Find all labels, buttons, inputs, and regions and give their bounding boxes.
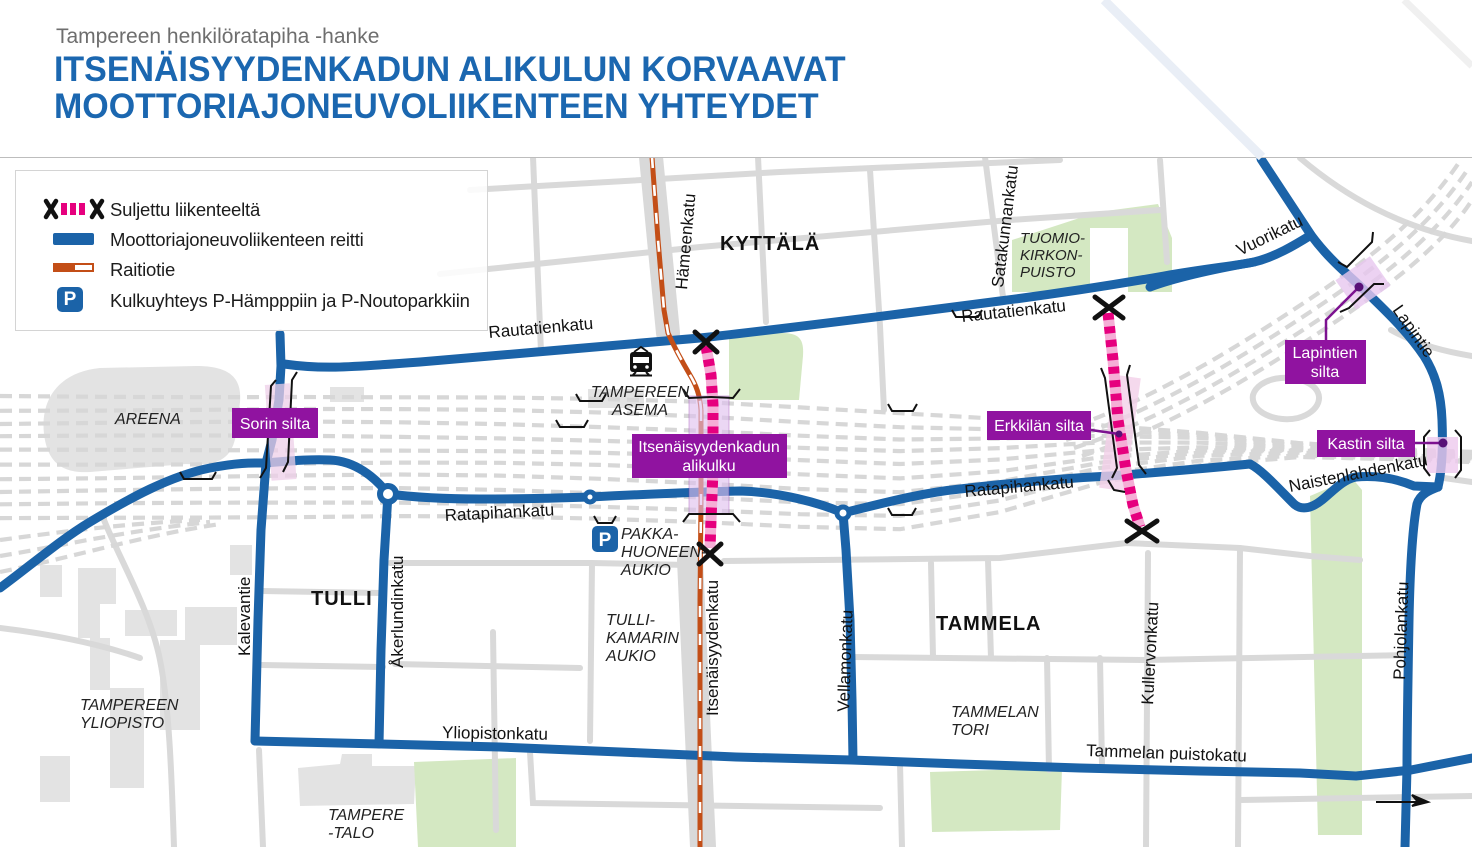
svg-text:Kalevantie: Kalevantie xyxy=(235,577,254,656)
svg-text:KIRKON-: KIRKON- xyxy=(1020,247,1083,264)
svg-text:TAMPEREEN: TAMPEREEN xyxy=(80,697,179,714)
svg-text:KAMARIN: KAMARIN xyxy=(606,630,679,647)
svg-text:Itsenäisyydenkatu: Itsenäisyydenkatu xyxy=(703,580,722,716)
svg-text:Itsenäisyydenkadun: Itsenäisyydenkadun xyxy=(638,439,779,456)
svg-text:PUISTO: PUISTO xyxy=(1020,264,1076,281)
svg-text:AUKIO: AUKIO xyxy=(605,648,656,665)
svg-text:TULLI-: TULLI- xyxy=(606,612,655,629)
svg-text:TORI: TORI xyxy=(951,722,989,739)
svg-text:TULLI: TULLI xyxy=(311,588,373,610)
svg-text:TUOMIO-: TUOMIO- xyxy=(1020,230,1085,247)
svg-text:Kastin silta: Kastin silta xyxy=(1327,436,1404,453)
svg-text:-TALO: -TALO xyxy=(328,825,374,842)
svg-text:silta: silta xyxy=(1311,364,1340,381)
svg-text:PAKKA-: PAKKA- xyxy=(621,526,679,543)
svg-text:AREENA: AREENA xyxy=(114,411,181,428)
svg-text:HUONEEN-: HUONEEN- xyxy=(621,544,706,561)
svg-text:TAMMELAN: TAMMELAN xyxy=(951,704,1039,721)
svg-text:TAMPERE: TAMPERE xyxy=(328,807,404,824)
svg-text:ASEMA: ASEMA xyxy=(611,402,668,419)
svg-text:Erkkilän silta: Erkkilän silta xyxy=(994,418,1084,435)
svg-text:Pohjolankatu: Pohjolankatu xyxy=(1390,581,1412,680)
svg-text:alikulku: alikulku xyxy=(682,458,735,475)
svg-text:Sorin silta: Sorin silta xyxy=(240,416,310,433)
svg-text:Åkerlundinkatu: Åkerlundinkatu xyxy=(388,556,407,668)
svg-text:Yliopistonkatu: Yliopistonkatu xyxy=(442,723,548,744)
svg-text:YLIOPISTO: YLIOPISTO xyxy=(80,715,164,732)
svg-text:AUKIO: AUKIO xyxy=(620,562,671,579)
svg-text:Lapintien: Lapintien xyxy=(1293,345,1358,362)
svg-text:KYTTÄLÄ: KYTTÄLÄ xyxy=(720,232,820,255)
svg-text:P: P xyxy=(599,530,612,551)
svg-text:Vellamonkatu: Vellamonkatu xyxy=(834,609,857,712)
svg-text:TAMMELA: TAMMELA xyxy=(936,613,1042,635)
svg-text:TAMPEREEN: TAMPEREEN xyxy=(591,384,690,401)
